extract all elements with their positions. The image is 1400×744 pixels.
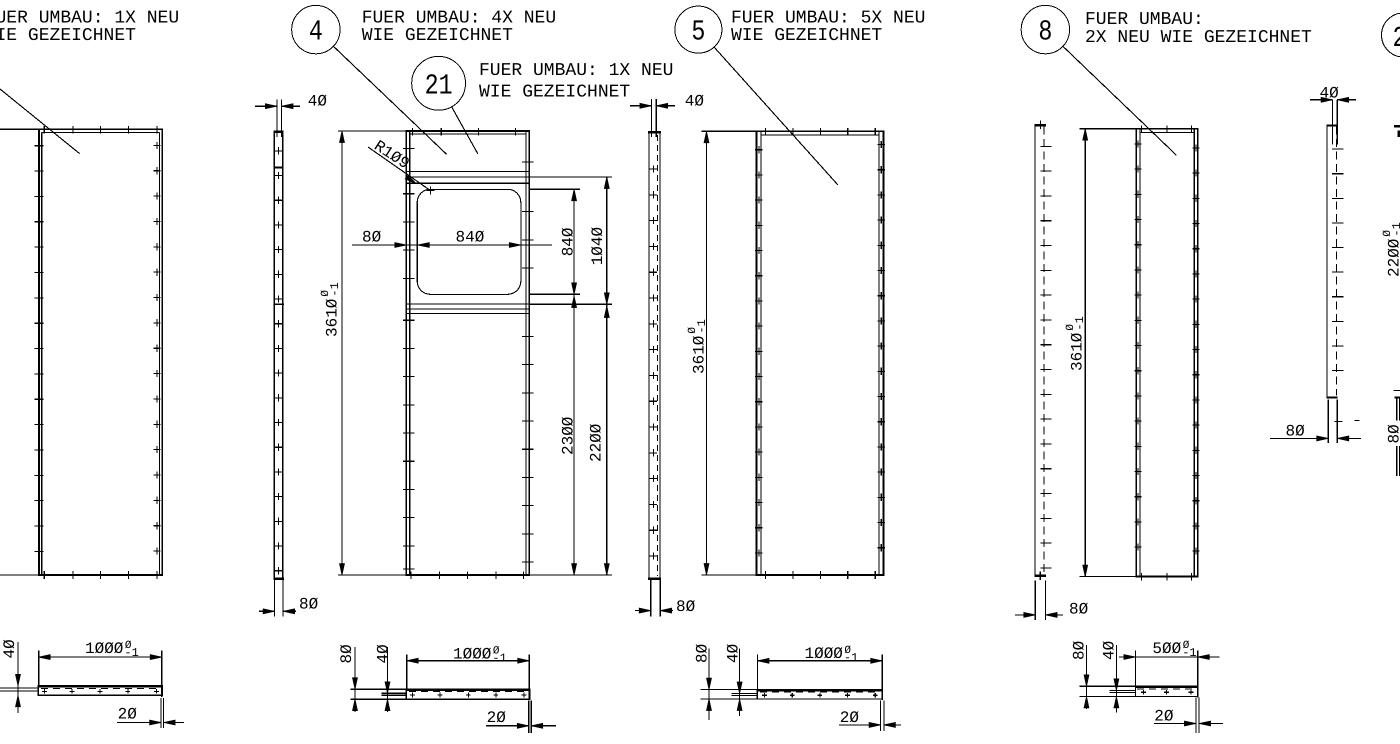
svg-text:4Ø: 4Ø: [375, 644, 393, 664]
svg-text:1ØØØ: 1ØØØ: [805, 645, 844, 663]
svg-text:8Ø: 8Ø: [299, 596, 319, 614]
svg-text:8: 8: [1038, 16, 1052, 49]
svg-text:84Ø: 84Ø: [456, 229, 485, 247]
svg-text:22ØØ: 22ØØ: [588, 423, 606, 462]
svg-text:8Ø: 8Ø: [676, 598, 696, 616]
svg-text:WIE GEZEICHNET: WIE GEZEICHNET: [0, 26, 136, 46]
svg-text:FUER UMBAU: 1X NEU: FUER UMBAU: 1X NEU: [479, 61, 673, 81]
svg-text:361Ø: 361Ø: [691, 335, 709, 374]
svg-text:8Ø: 8Ø: [338, 644, 356, 664]
svg-text:8Ø: 8Ø: [1386, 424, 1400, 444]
svg-text:WIE GEZEICHNET: WIE GEZEICHNET: [731, 26, 882, 46]
svg-text:5ØØ: 5ØØ: [1152, 640, 1181, 658]
svg-text:2: 2: [1393, 22, 1400, 55]
svg-text:2Ø: 2Ø: [840, 709, 860, 727]
svg-text:-1: -1: [1073, 316, 1087, 330]
svg-text:WIE GEZEICHNET: WIE GEZEICHNET: [362, 26, 513, 46]
svg-text:361Ø: 361Ø: [324, 298, 342, 337]
svg-text:23ØØ: 23ØØ: [559, 416, 577, 455]
svg-text:1ØØØ: 1ØØØ: [85, 640, 124, 658]
svg-text:22ØØ: 22ØØ: [1385, 238, 1400, 277]
svg-text:4Ø: 4Ø: [1, 639, 19, 659]
svg-text:1Ø4Ø: 1Ø4Ø: [589, 226, 607, 265]
svg-text:-1: -1: [328, 282, 342, 296]
svg-text:2Ø: 2Ø: [118, 706, 138, 724]
svg-text:4Ø: 4Ø: [308, 93, 328, 111]
svg-text:1ØØØ: 1ØØØ: [453, 645, 492, 663]
svg-text:-1: -1: [492, 651, 506, 665]
svg-text:21: 21: [425, 70, 453, 103]
svg-text:2Ø: 2Ø: [1154, 708, 1174, 726]
svg-text:5: 5: [691, 16, 705, 49]
svg-text:4Ø: 4Ø: [1101, 640, 1119, 660]
svg-text:-1: -1: [844, 651, 858, 665]
svg-text:4Ø: 4Ø: [1320, 85, 1340, 103]
svg-text:2X NEU WIE GEZEICHNET: 2X NEU WIE GEZEICHNET: [1085, 28, 1312, 48]
svg-text:4: 4: [309, 16, 323, 49]
svg-text:8Ø: 8Ø: [1071, 640, 1089, 660]
svg-text:2Ø: 2Ø: [487, 709, 507, 727]
svg-text:84Ø: 84Ø: [559, 227, 577, 256]
svg-text:-1: -1: [1390, 222, 1400, 236]
svg-text:8Ø: 8Ø: [362, 229, 382, 247]
svg-text:8Ø: 8Ø: [1069, 601, 1089, 619]
svg-text:-1: -1: [124, 646, 138, 660]
svg-text:8Ø: 8Ø: [1286, 423, 1306, 441]
svg-text:-1: -1: [1182, 646, 1196, 660]
svg-text:361Ø: 361Ø: [1069, 332, 1087, 371]
svg-text:4Ø: 4Ø: [685, 93, 705, 111]
svg-text:-1: -1: [695, 319, 709, 333]
svg-text:WIE GEZEICHNET: WIE GEZEICHNET: [479, 82, 630, 102]
